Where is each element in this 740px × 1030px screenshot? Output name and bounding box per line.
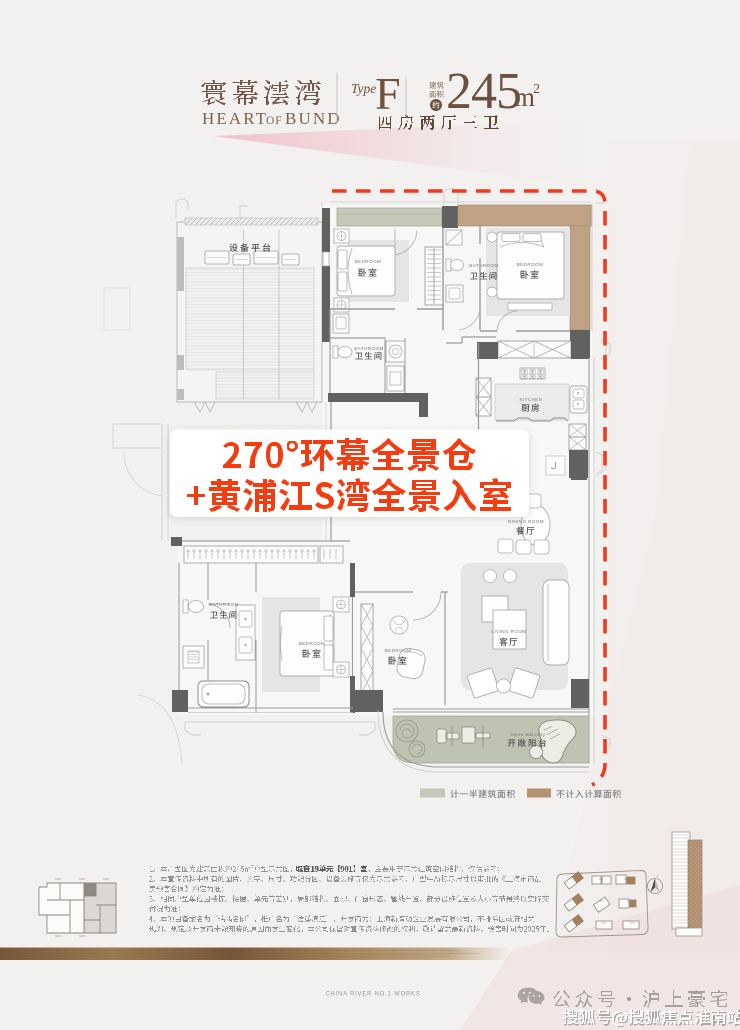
svg-text:BEDROOM: BEDROOM xyxy=(517,262,544,267)
svg-text:F: F xyxy=(375,68,401,119)
svg-text:Type: Type xyxy=(351,81,376,96)
svg-text:245: 245 xyxy=(446,63,521,120)
svg-text:m: m xyxy=(514,82,535,112)
svg-text:BEDROOM: BEDROOM xyxy=(355,259,382,264)
svg-text:LIVING ROOM: LIVING ROOM xyxy=(491,629,526,634)
svg-text:KITCHEN: KITCHEN xyxy=(520,397,543,402)
svg-text:BEDROOM: BEDROOM xyxy=(299,641,326,646)
svg-text:OF: OF xyxy=(266,115,283,127)
svg-text:BATHROOM: BATHROOM xyxy=(469,263,498,268)
svg-text:Open Balcony: Open Balcony xyxy=(511,732,546,738)
svg-text:CHINA RIVER NO.1 WORKS: CHINA RIVER NO.1 WORKS xyxy=(326,991,421,998)
svg-text:DINING ROOM: DINING ROOM xyxy=(508,519,544,524)
svg-text:BUND: BUND xyxy=(285,109,342,128)
svg-text:BATHROOM: BATHROOM xyxy=(209,602,238,607)
svg-text:2: 2 xyxy=(533,82,540,97)
svg-text:BATHROOM: BATHROOM xyxy=(354,346,383,351)
svg-text:HEART: HEART xyxy=(202,109,268,128)
svg-text:BEDROOM: BEDROOM xyxy=(385,648,412,653)
